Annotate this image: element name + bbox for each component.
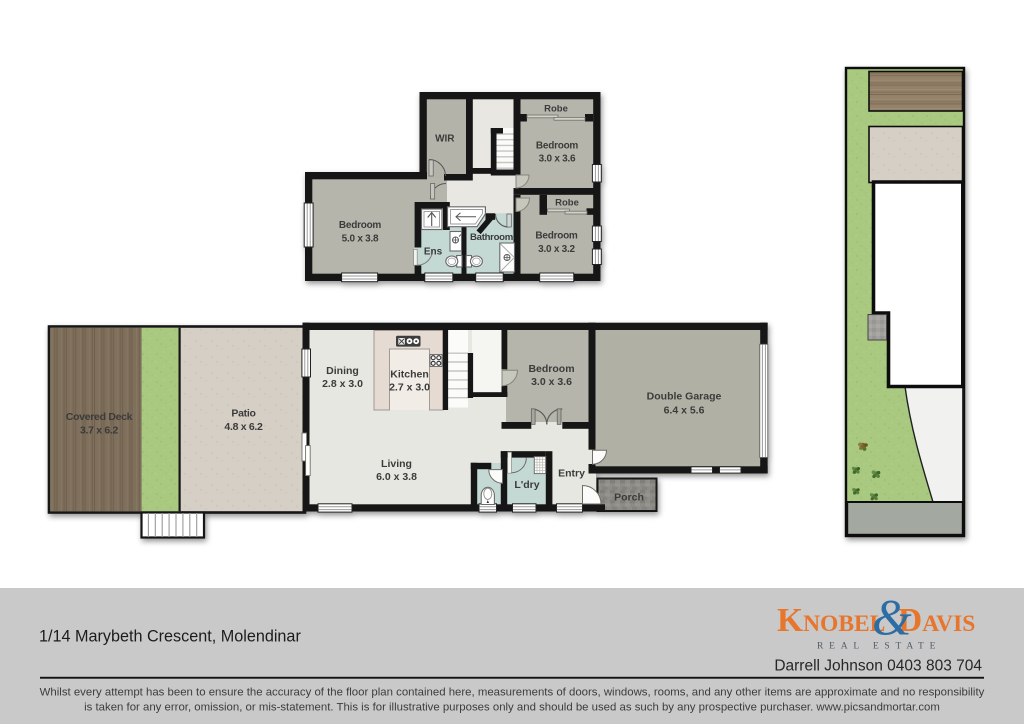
svg-text:Kitchen: Kitchen (390, 369, 429, 381)
svg-text:Darrell Johnson 0403 803 704: Darrell Johnson 0403 803 704 (774, 658, 982, 675)
svg-text:Bedroom: Bedroom (535, 231, 578, 242)
svg-text:Bedroom: Bedroom (536, 141, 579, 152)
svg-text:Porch: Porch (614, 492, 644, 504)
svg-text:&: & (872, 591, 912, 647)
svg-text:3.7 x 6.2: 3.7 x 6.2 (80, 425, 119, 437)
svg-text:3.0 x 3.6: 3.0 x 3.6 (539, 154, 576, 165)
svg-text:6.4 x 5.6: 6.4 x 5.6 (664, 405, 705, 417)
svg-text:6.0 x 3.8: 6.0 x 3.8 (376, 471, 417, 483)
svg-text:Robe: Robe (544, 104, 568, 115)
svg-text:L'dry: L'dry (514, 479, 539, 491)
svg-text:1/14 Marybeth Crescent, Molend: 1/14 Marybeth Crescent, Molendinar (39, 628, 301, 646)
svg-text:Bedroom: Bedroom (339, 220, 382, 231)
svg-text:5.0 x 3.8: 5.0 x 3.8 (342, 234, 379, 245)
svg-text:is taken for any error, omissi: is taken for any error, omission, or mis… (84, 702, 940, 714)
svg-text:3.0 x 3.6: 3.0 x 3.6 (531, 376, 572, 388)
svg-text:Bedroom: Bedroom (528, 363, 574, 375)
svg-text:Bathroom: Bathroom (470, 232, 513, 243)
svg-text:Patio: Patio (231, 408, 255, 420)
svg-text:2.7 x 3.0: 2.7 x 3.0 (389, 382, 430, 394)
svg-text:Dining: Dining (326, 365, 359, 377)
svg-text:WIR: WIR (435, 134, 455, 145)
svg-text:4.8 x 6.2: 4.8 x 6.2 (224, 421, 263, 433)
svg-text:REAL ESTATE: REAL ESTATE (817, 642, 941, 652)
svg-text:Double Garage: Double Garage (647, 391, 722, 403)
svg-text:Ens: Ens (424, 247, 443, 258)
svg-text:Robe: Robe (555, 198, 579, 209)
svg-text:3.0 x 3.2: 3.0 x 3.2 (538, 244, 575, 255)
svg-text:Living: Living (381, 458, 412, 470)
svg-text:Whilst every attempt has been: Whilst every attempt has been to ensure … (40, 687, 985, 699)
svg-text:Entry: Entry (558, 468, 585, 480)
svg-text:Covered Deck: Covered Deck (66, 411, 133, 423)
svg-text:2.8 x 3.0: 2.8 x 3.0 (322, 378, 363, 390)
